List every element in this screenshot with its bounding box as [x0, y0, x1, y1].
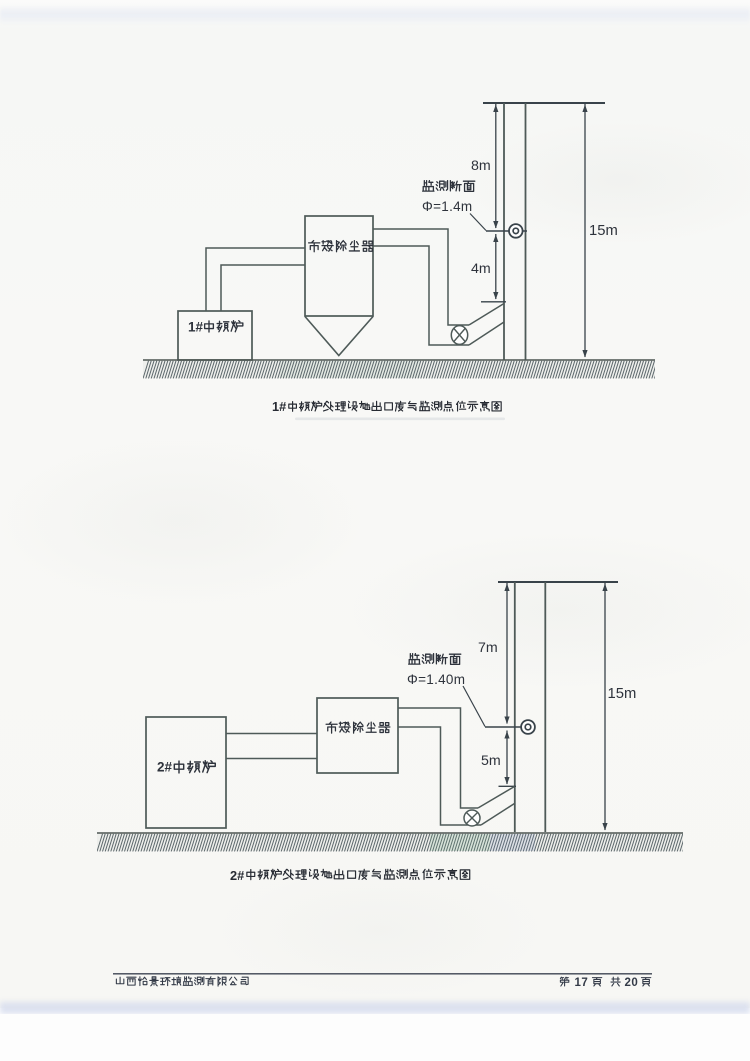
- svg-text:4m: 4m: [471, 261, 491, 277]
- svg-text:17: 17: [575, 977, 589, 989]
- svg-text:2#: 2#: [230, 868, 244, 883]
- svg-text:8m: 8m: [471, 158, 491, 174]
- svg-text:7m: 7m: [478, 640, 498, 656]
- svg-text:2#: 2#: [157, 760, 173, 775]
- svg-text:15m: 15m: [608, 686, 637, 702]
- svg-text:15m: 15m: [589, 223, 618, 239]
- svg-text:1#: 1#: [188, 320, 204, 335]
- svg-text:Φ=1.4m: Φ=1.4m: [422, 199, 472, 214]
- svg-text:20: 20: [625, 977, 639, 989]
- svg-text:5m: 5m: [481, 753, 501, 769]
- svg-text:1#: 1#: [272, 399, 286, 414]
- svg-text:Φ=1.40m: Φ=1.40m: [407, 672, 465, 687]
